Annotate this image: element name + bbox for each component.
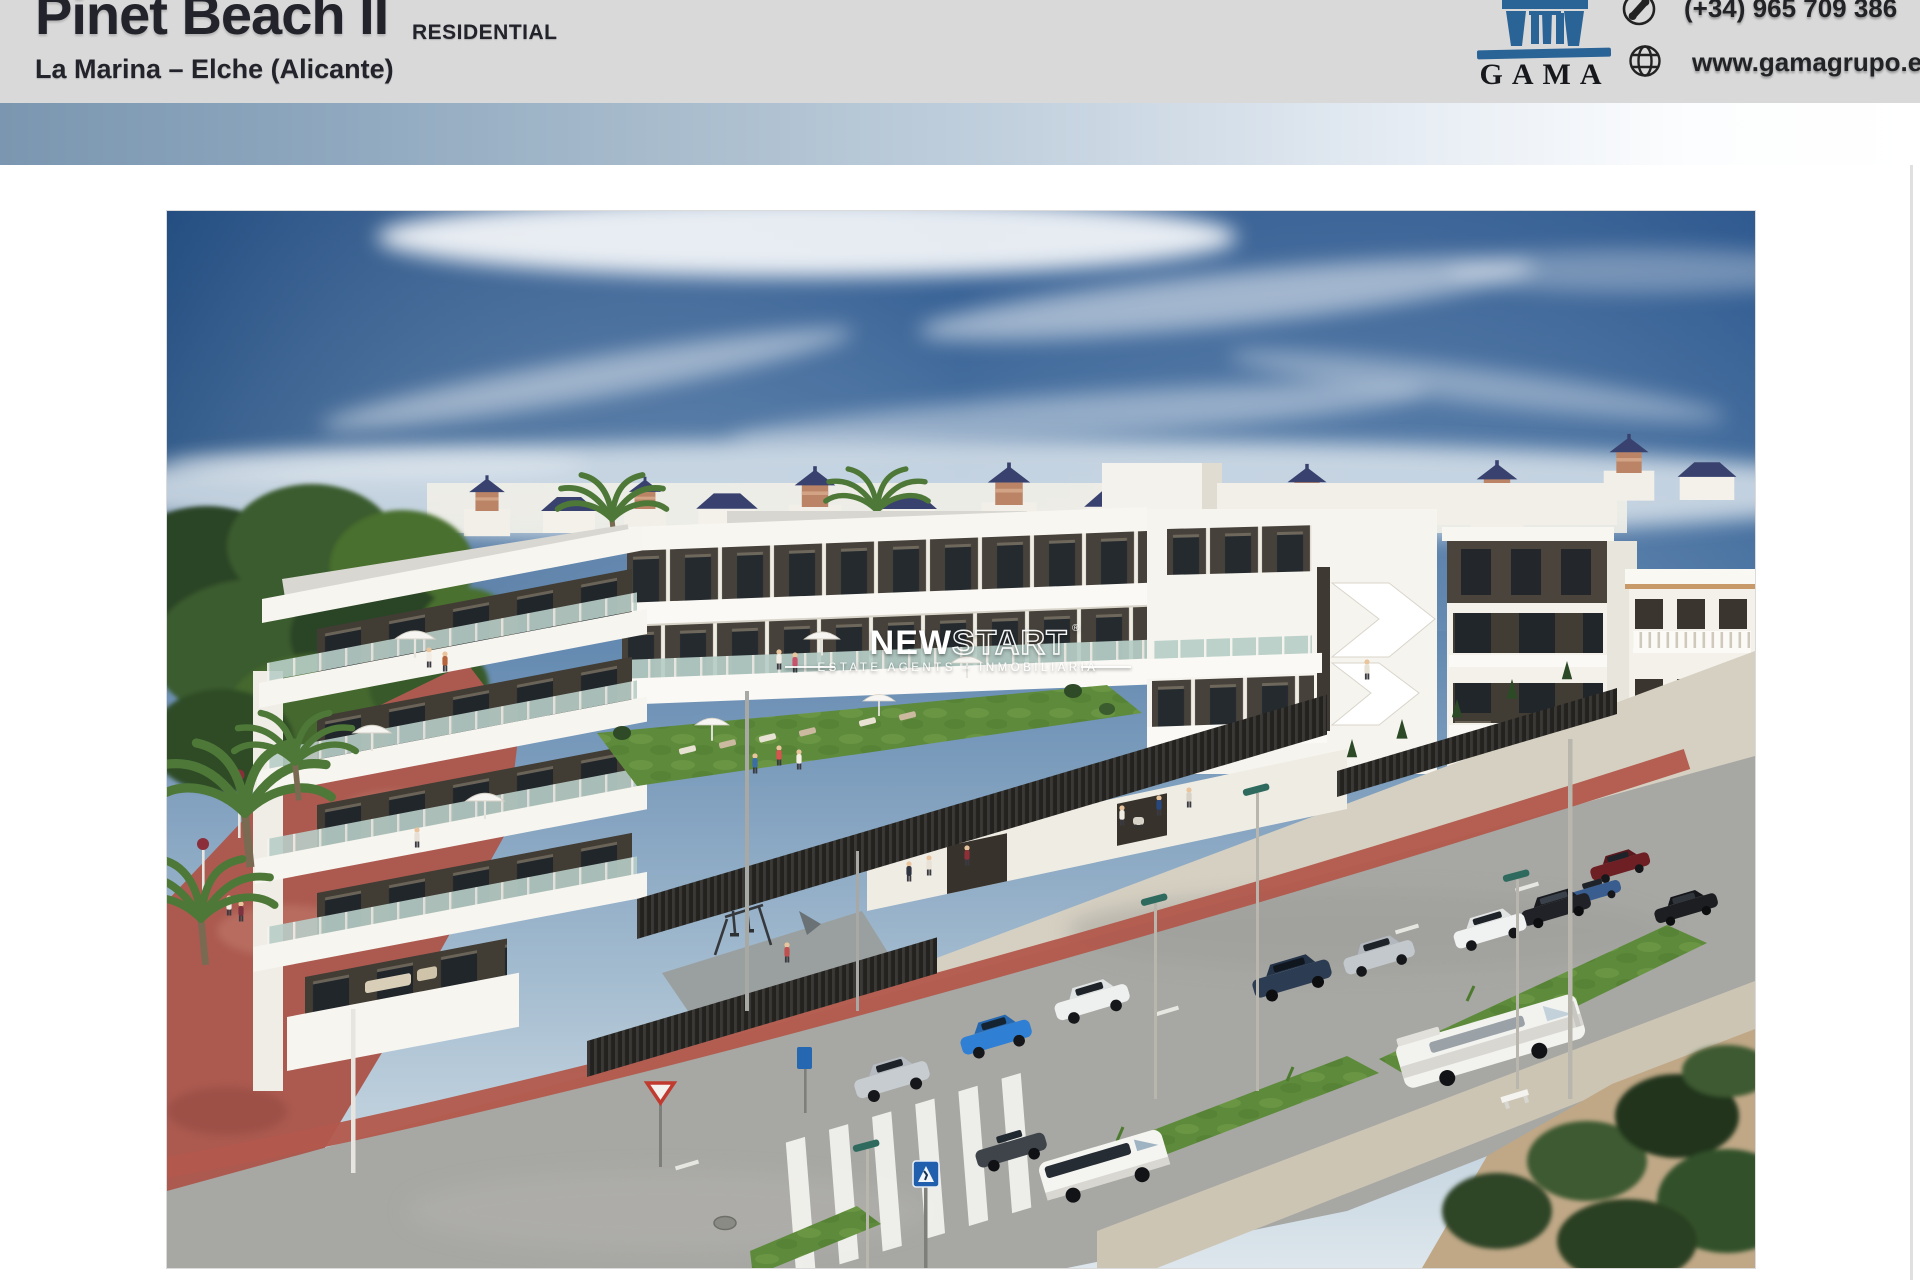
page-edge-shadow — [1910, 165, 1913, 1280]
brand-name: GAMA — [1462, 58, 1628, 92]
gama-logo-icon — [1500, 0, 1590, 50]
page-title-suffix: RESIDENTIAL — [412, 21, 558, 45]
watermark-new: NEW — [870, 624, 952, 662]
watermark-tagline: ESTATE AGENTS – INMOBILIARIA — [818, 662, 1099, 674]
page-title: Pinet Beach II — [35, 0, 388, 45]
accent-gradient-bar — [0, 103, 1920, 165]
render-scene: NEW START ® ESTATE AGENTS – INMOBILIARIA — [167, 211, 1755, 1268]
center-block — [617, 507, 1157, 705]
header-bar: Pinet Beach II RESIDENTIAL La Marina – E… — [0, 0, 1920, 103]
manhole — [714, 1217, 736, 1230]
property-render-image: NEW START ® ESTATE AGENTS – INMOBILIARIA — [167, 211, 1755, 1268]
website-url: www.gamagrupo.es — [1692, 47, 1920, 78]
globe-icon — [1626, 42, 1664, 80]
watermark-registered: ® — [1072, 623, 1080, 634]
watermark-start: START — [952, 624, 1068, 662]
page-subtitle: La Marina – Elche (Alicante) — [35, 54, 394, 85]
flyer-page: Pinet Beach II RESIDENTIAL La Marina – E… — [0, 0, 1920, 1280]
phone-icon — [1620, 0, 1658, 28]
phone-number: (+34) 965 709 386 — [1684, 0, 1897, 24]
